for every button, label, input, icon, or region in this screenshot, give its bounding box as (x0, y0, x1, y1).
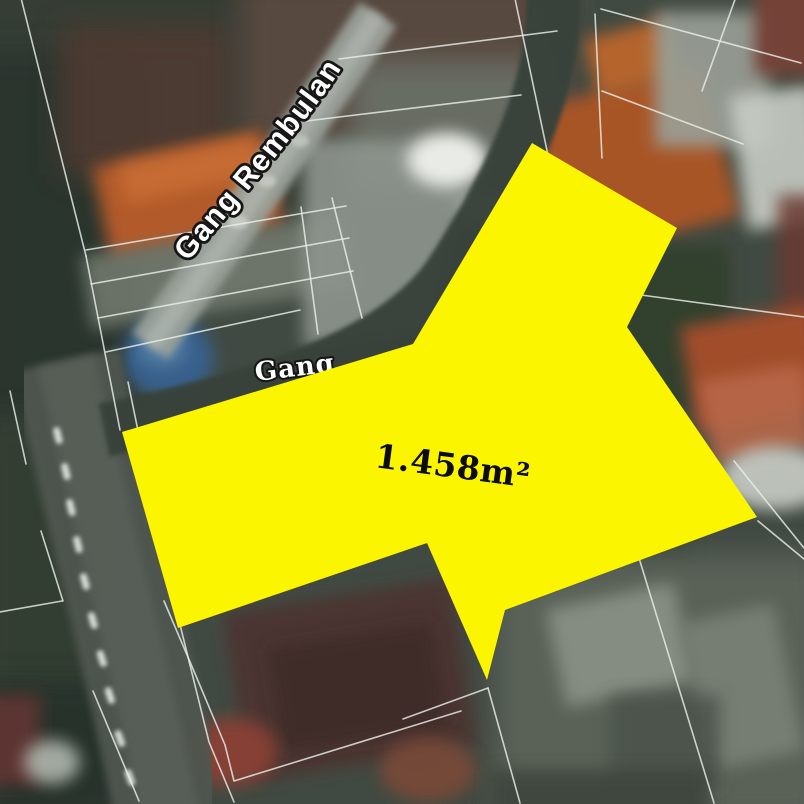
roof-patch (755, 0, 804, 75)
map-canvas[interactable]: Gang Rembulan Gang 1.458m² (0, 0, 804, 804)
white-roof (407, 133, 487, 187)
vegetation-patch (490, 770, 710, 804)
roof-patch (778, 195, 804, 325)
white-roof (24, 740, 80, 784)
roof-patch (380, 738, 476, 802)
satellite-map[interactable]: Gang Rembulan Gang 1.458m² (0, 0, 804, 804)
